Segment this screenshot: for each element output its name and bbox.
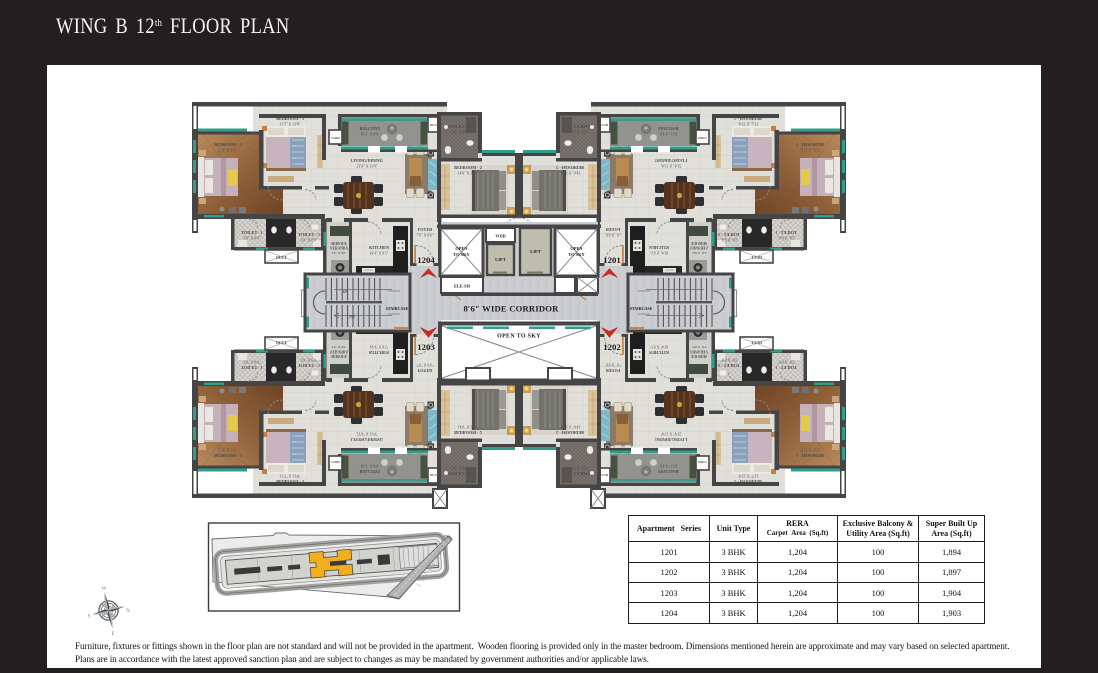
svg-text:BEDROOM - 2: BEDROOM - 2 xyxy=(454,165,482,170)
svg-text:DN: DN xyxy=(349,315,355,319)
svg-text:BALCONY: BALCONY xyxy=(360,126,381,131)
svg-text:BEDROOM - 3: BEDROOM - 3 xyxy=(276,116,304,121)
svg-text:TO SKY: TO SKY xyxy=(453,252,470,257)
svg-text:7′10″ X 5′0″: 7′10″ X 5′0″ xyxy=(450,131,469,135)
svg-text:OPEN: OPEN xyxy=(570,246,583,251)
svg-text:21′9″ X 11′9″: 21′9″ X 11′9″ xyxy=(357,165,378,169)
svg-text:1201: 1201 xyxy=(603,255,621,265)
svg-text:7′0″ X 6′6″: 7′0″ X 6′6″ xyxy=(416,234,433,238)
svg-text:TOILET - 3: TOILET - 3 xyxy=(298,232,320,237)
svg-text:DUCT: DUCT xyxy=(276,256,287,260)
svg-text:W: W xyxy=(102,587,107,592)
svg-text:10′4″ X 9′1″: 10′4″ X 9′1″ xyxy=(370,252,389,256)
svg-text:VERANDA: VERANDA xyxy=(330,247,348,251)
svg-text:TOILET - 1: TOILET - 1 xyxy=(241,230,263,235)
svg-text:5′6″ X 8′0″: 5′6″ X 8′0″ xyxy=(331,251,347,255)
svg-text:SERVICE: SERVICE xyxy=(331,242,347,246)
svg-text:UP: UP xyxy=(343,290,348,294)
svg-text:5′0″ X 8′0″: 5′0″ X 8′0″ xyxy=(300,239,317,243)
svg-text:KITCHEN: KITCHEN xyxy=(369,245,389,250)
svg-text:S: S xyxy=(88,615,91,620)
svg-text:N: N xyxy=(126,609,130,614)
svg-text:STAIRCASE: STAIRCASE xyxy=(630,306,653,311)
svg-text:E: E xyxy=(111,632,114,637)
svg-text:FOYER: FOYER xyxy=(418,227,434,232)
svg-text:12′0″ X 11′1″: 12′0″ X 11′1″ xyxy=(218,149,239,153)
svg-text:LIFT: LIFT xyxy=(495,257,506,262)
svg-text:8′6″ WIDE CORRIDOR: 8′6″ WIDE CORRIDOR xyxy=(463,304,559,314)
svg-text:VOID: VOID xyxy=(495,234,505,239)
svg-text:LIFT: LIFT xyxy=(530,249,541,254)
svg-text:1203: 1203 xyxy=(417,342,435,352)
svg-text:ELE-SH: ELE-SH xyxy=(454,284,471,289)
svg-text:TO SKY: TO SKY xyxy=(568,252,585,257)
svg-text:1202: 1202 xyxy=(603,342,621,352)
svg-text:LIVING/DINING: LIVING/DINING xyxy=(351,158,384,163)
svg-text:BEDROOM - 1: BEDROOM - 1 xyxy=(214,142,242,147)
svg-text:DUCT: DUCT xyxy=(430,123,440,127)
svg-text:STAIRCASE: STAIRCASE xyxy=(386,306,409,311)
svg-text:OPEN: OPEN xyxy=(455,246,468,251)
svg-text:11′7″ X 13′0″: 11′7″ X 13′0″ xyxy=(280,123,301,127)
svg-text:1204: 1204 xyxy=(417,255,435,265)
svg-text:5′6″ X 8′0″: 5′6″ X 8′0″ xyxy=(243,237,260,241)
svg-text:16′1″ X 4′6″: 16′1″ X 4′6″ xyxy=(361,133,380,137)
svg-text:VOID: VOID xyxy=(331,136,340,140)
svg-text:14′6″ X 12′0″: 14′6″ X 12′0″ xyxy=(458,172,479,176)
svg-text:TOILET - 2: TOILET - 2 xyxy=(448,124,470,129)
svg-text:OPEN TO SKY: OPEN TO SKY xyxy=(497,334,541,340)
